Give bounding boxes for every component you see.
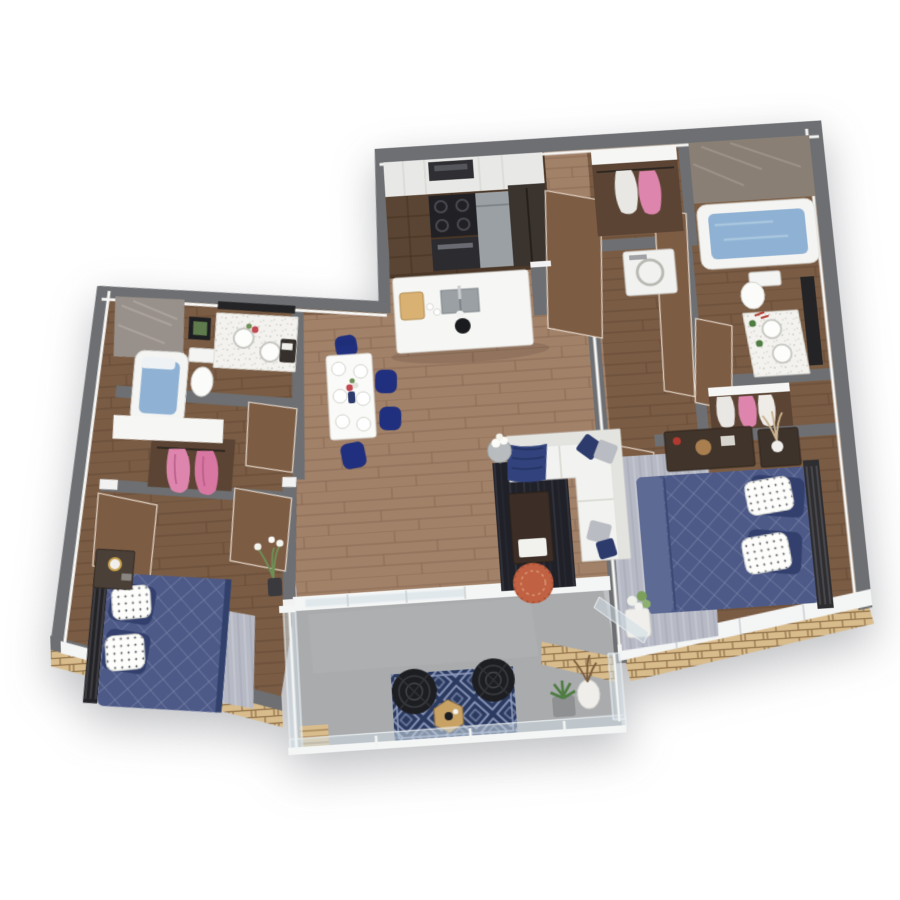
wardrobe-niche — [148, 435, 236, 491]
bed-2 — [635, 460, 833, 621]
bed-1 — [83, 572, 232, 713]
console-dish — [720, 435, 735, 446]
oven-front — [431, 237, 480, 271]
cup-1 — [426, 303, 433, 310]
cup-2 — [434, 309, 441, 316]
nightstand-1 — [92, 547, 136, 593]
vessel-sink — [233, 328, 254, 349]
cooktop-icon — [428, 193, 478, 238]
cutting-board — [399, 292, 424, 320]
vanity-tray — [279, 339, 296, 363]
brass-lamp — [109, 558, 122, 571]
dressing-door-right — [227, 484, 296, 574]
floor-plan-rendering — [0, 0, 900, 900]
vessel-sink — [762, 319, 782, 339]
table-tray — [518, 538, 547, 558]
dishwasher-icon — [475, 191, 514, 268]
room-kitchen — [379, 152, 558, 367]
vanity-2 — [743, 310, 810, 378]
island-faucet — [459, 286, 460, 299]
tub-pillow — [141, 356, 176, 369]
tub-water — [708, 208, 809, 260]
plan-perspective-wrapper — [0, 0, 900, 900]
vessel-sink — [260, 342, 281, 363]
floor-plan-canvas — [0, 0, 900, 900]
walk-in-closet — [708, 383, 793, 431]
vessel-sink — [772, 344, 793, 364]
framed-art — [187, 315, 212, 342]
bath1-door — [243, 399, 300, 475]
